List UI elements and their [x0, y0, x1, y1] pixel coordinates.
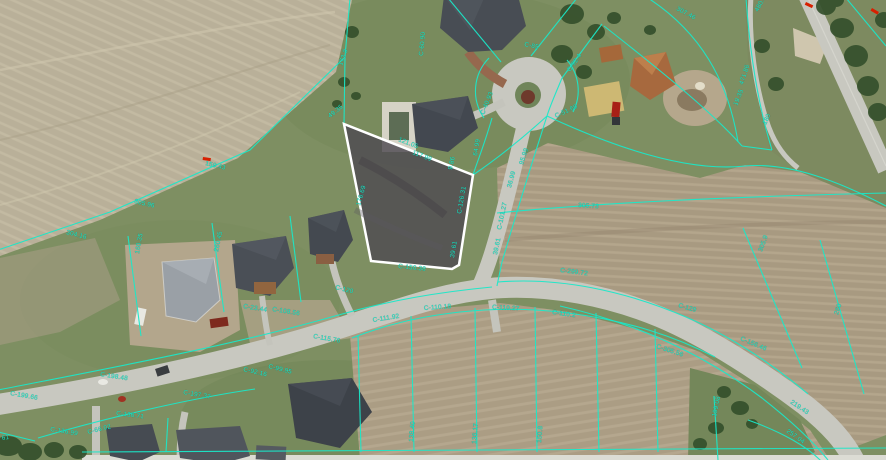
- aerial-map-viewport[interactable]: 173.349.35121.05117.999.86C-126.3139.61C…: [0, 0, 886, 460]
- parcel-dimension-label: C-110.27: [492, 304, 520, 312]
- aerial-parcel-map[interactable]: 173.349.35121.05117.999.86C-126.3139.61C…: [0, 0, 886, 460]
- parcel-dimension-label: 305.73: [578, 202, 599, 210]
- parcel-dimension-label: 61: [1, 434, 10, 442]
- red-truck: [611, 102, 620, 118]
- house: [106, 424, 160, 460]
- deck: [254, 282, 276, 294]
- house: [176, 426, 250, 460]
- house: [256, 445, 287, 460]
- white-car: [98, 379, 108, 385]
- deck: [316, 254, 334, 264]
- red-object: [118, 396, 126, 402]
- parcel-dimension-label: 150.8: [536, 425, 544, 443]
